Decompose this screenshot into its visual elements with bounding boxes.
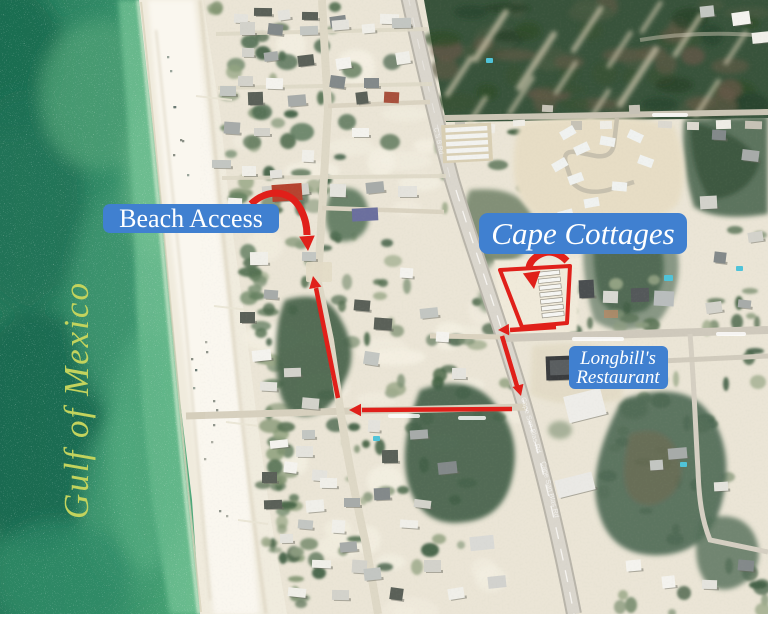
svg-text:Restaurant: Restaurant	[575, 367, 660, 388]
svg-text:Gulf of Mexico: Gulf of Mexico	[57, 281, 96, 519]
svg-text:Longbill's: Longbill's	[579, 348, 656, 369]
svg-text:Cape Cottages: Cape Cottages	[491, 216, 674, 251]
svg-text:Beach Access: Beach Access	[119, 204, 263, 233]
